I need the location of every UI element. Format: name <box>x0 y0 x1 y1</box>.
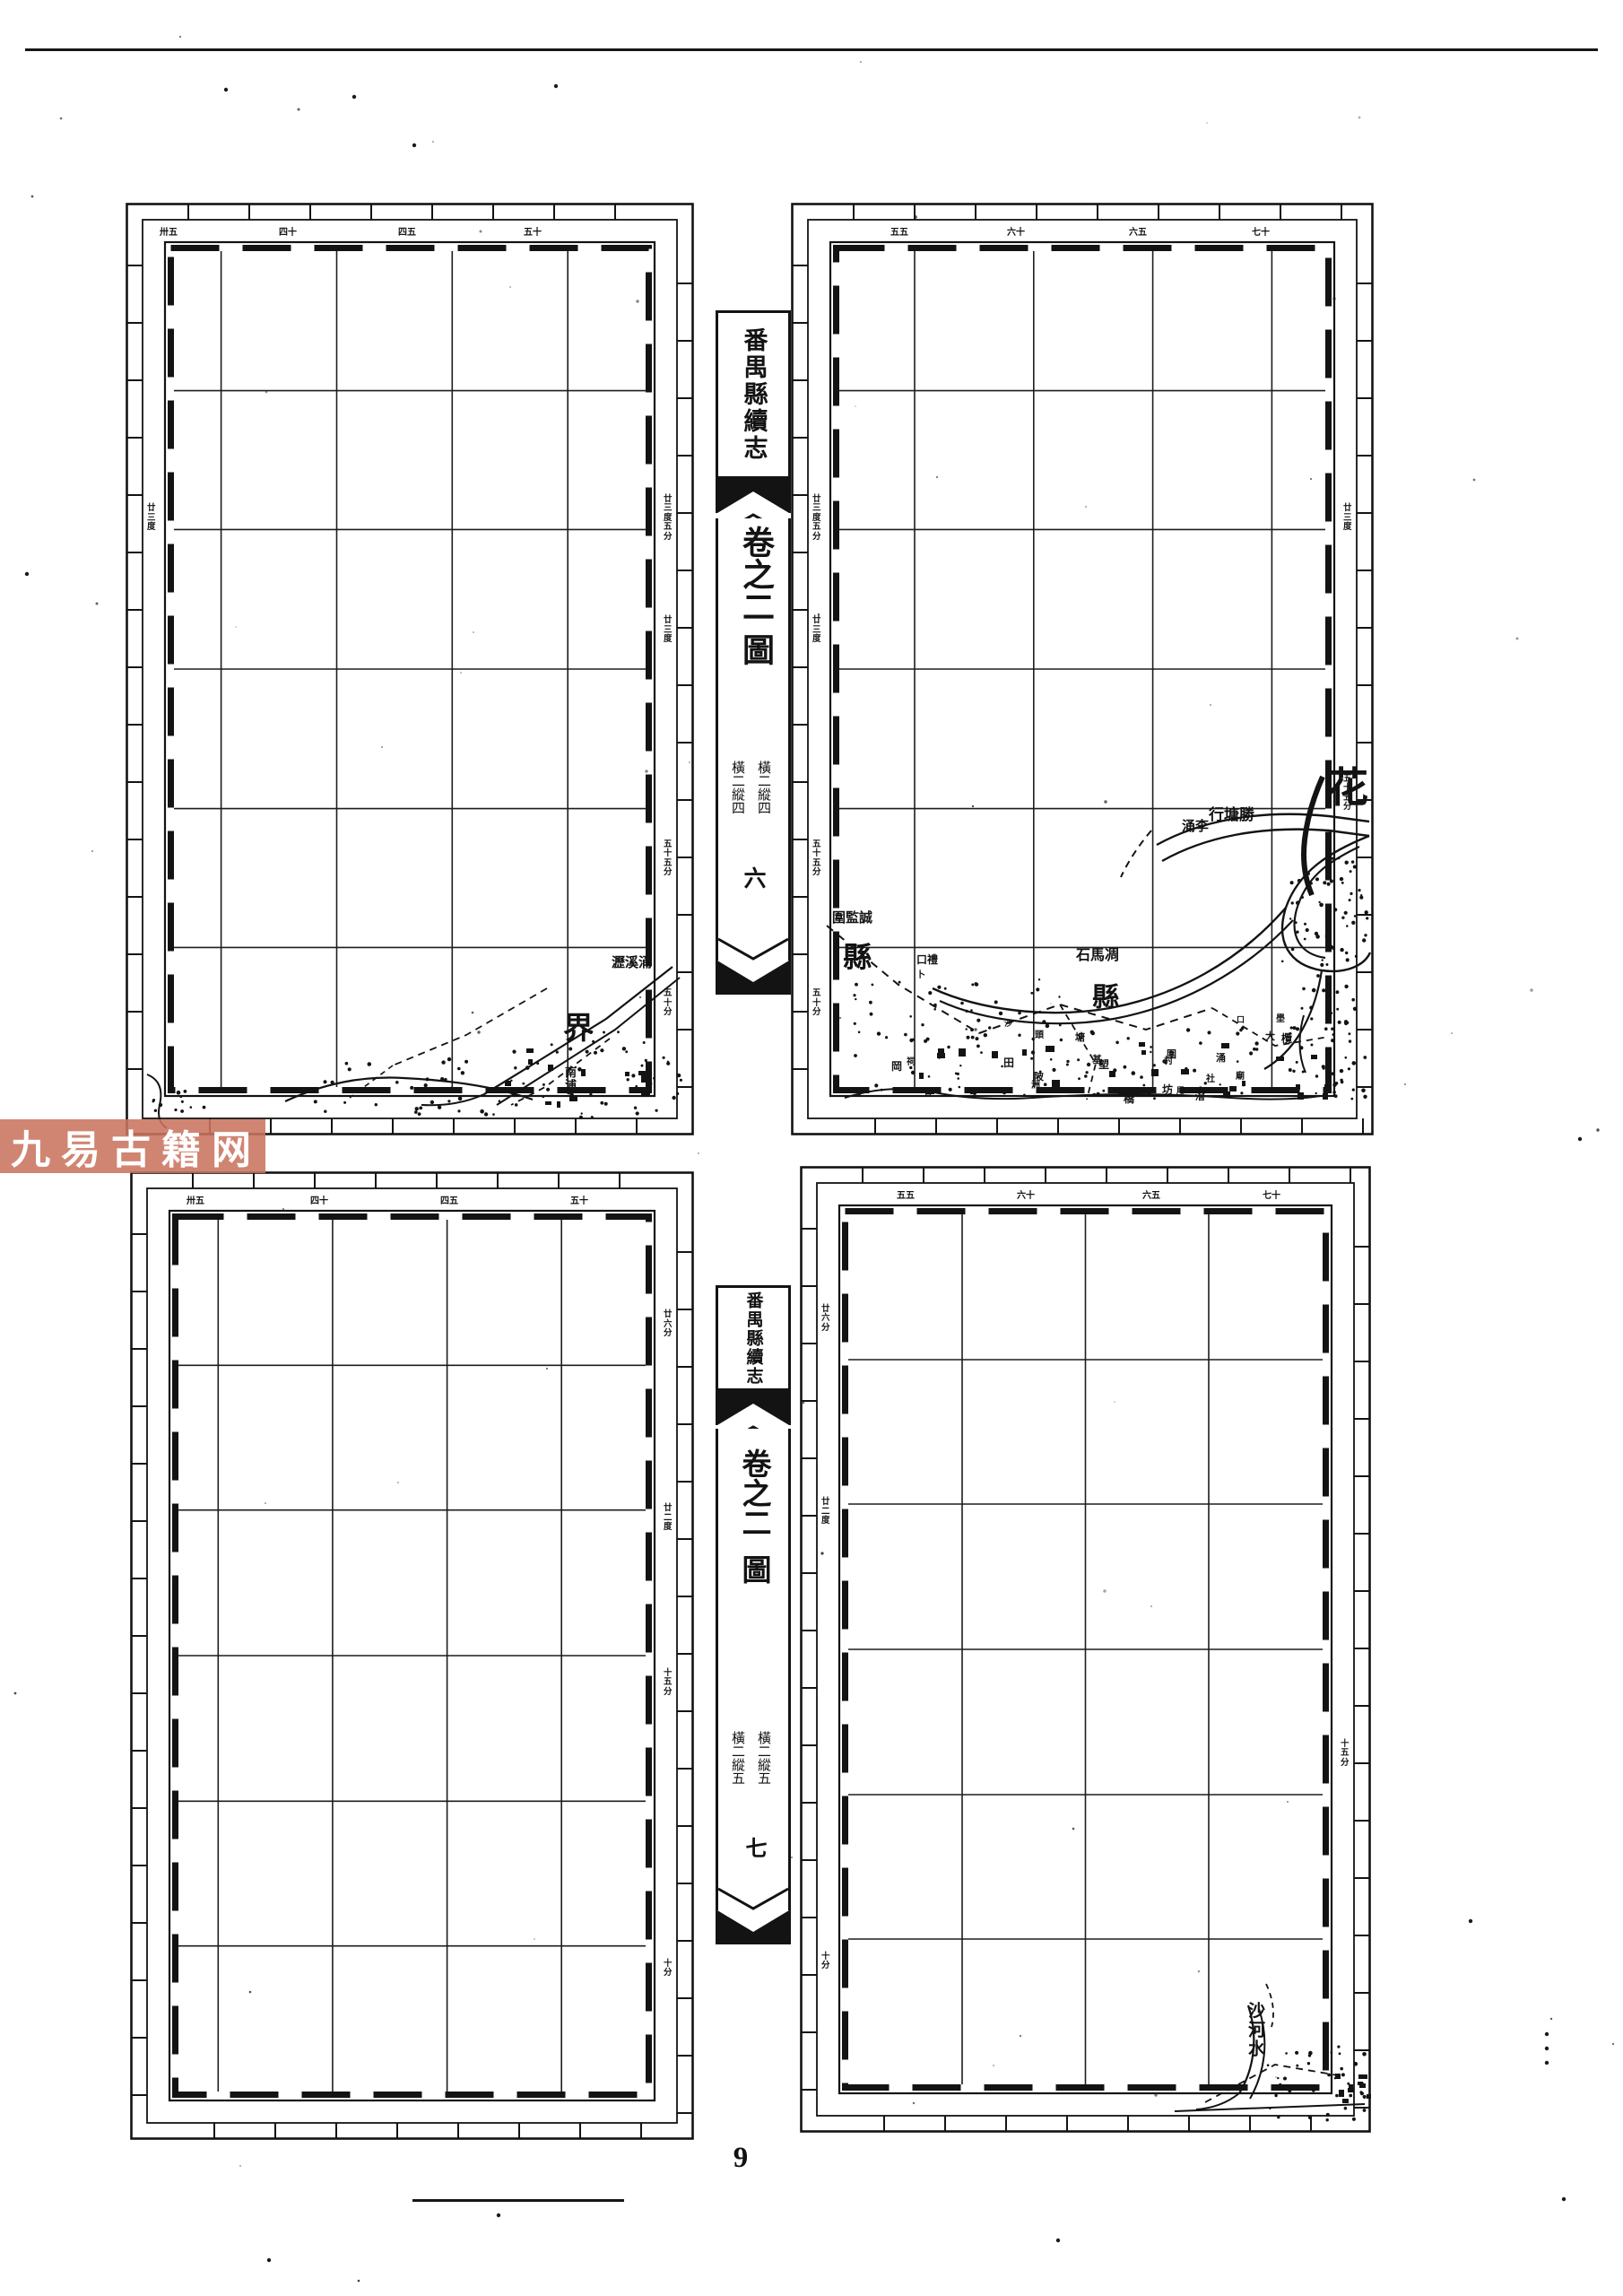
svg-text:分: 分 <box>664 1967 673 1978</box>
svg-text:分: 分 <box>812 531 821 542</box>
spine-column-top: 番禺縣續志 卷之二 圖 橫二縱四 橫二縱四 六 <box>716 310 791 995</box>
svg-text:四十: 四十 <box>310 1195 328 1206</box>
svg-text:祠: 祠 <box>907 1056 916 1067</box>
svg-text:五五: 五五 <box>890 227 908 238</box>
svg-text:口: 口 <box>1237 1015 1245 1025</box>
svg-text:界: 界 <box>563 1011 594 1047</box>
bottom-rule <box>412 2199 624 2202</box>
svg-text:口禮: 口禮 <box>916 952 938 966</box>
svg-text:度: 度 <box>821 1515 830 1526</box>
svg-text:圍: 圍 <box>1167 1048 1176 1060</box>
spine-column-bottom: 番禺縣續志 卷之二 圖 橫二縱五 橫二縱五 七 <box>716 1285 791 1944</box>
svg-text:五: 五 <box>664 522 673 532</box>
svg-text:廿: 廿 <box>1343 502 1352 513</box>
map-labels: 沙河水 <box>1248 2001 1266 2059</box>
svg-text:度: 度 <box>664 633 673 644</box>
svg-text:五: 五 <box>664 1677 673 1687</box>
volume-label: 卷之二 <box>739 526 771 622</box>
map-panel-top-left: 卅五四十四五五十廿三度五分廿三度五十五分五十分廿三度界瀝溪涌南浦 <box>126 203 694 1135</box>
svg-text:卅五: 卅五 <box>186 1196 204 1206</box>
svg-text:縣: 縣 <box>843 940 872 974</box>
svg-text:浦: 浦 <box>565 1079 577 1093</box>
svg-text:分: 分 <box>664 1686 673 1697</box>
svg-text:廿: 廿 <box>664 1309 673 1319</box>
spine-title-box: 番禺縣續志 <box>716 1285 791 1391</box>
svg-text:分: 分 <box>664 1327 673 1338</box>
svg-text:社: 社 <box>1205 1073 1215 1084</box>
svg-text:田: 田 <box>1003 1057 1014 1069</box>
svg-text:六十: 六十 <box>1007 226 1025 238</box>
svg-text:分: 分 <box>812 866 821 877</box>
map-artwork <box>1175 1984 1371 2121</box>
svg-text:五十: 五十 <box>570 1195 588 1206</box>
svg-text:卅五: 卅五 <box>159 227 178 238</box>
svg-text:分: 分 <box>664 531 673 542</box>
svg-text:十: 十 <box>812 848 821 858</box>
svg-text:頭: 頭 <box>1035 1030 1045 1040</box>
svg-text:分: 分 <box>821 1960 830 1970</box>
svg-text:橋: 橋 <box>1124 1091 1135 1105</box>
svg-text:欖: 欖 <box>1281 1031 1292 1045</box>
svg-text:尾: 尾 <box>1176 1086 1185 1096</box>
svg-text:五五: 五五 <box>897 1190 915 1201</box>
svg-text:涌: 涌 <box>1216 1051 1226 1064</box>
folio-character: 七 <box>743 1837 765 1858</box>
svg-text:花: 花 <box>1327 763 1368 812</box>
graticule-grid <box>178 1220 646 2092</box>
svg-text:三: 三 <box>812 503 821 513</box>
svg-text:四十: 四十 <box>279 226 297 238</box>
svg-text:廟: 廟 <box>1236 1070 1245 1082</box>
volume-label: 卷之二 <box>740 1448 769 1537</box>
svg-text:度: 度 <box>1343 521 1352 532</box>
svg-text:度: 度 <box>664 1521 673 1532</box>
svg-text:壆: 壆 <box>1276 1013 1285 1024</box>
svg-text:十: 十 <box>664 848 673 858</box>
svg-text:沙: 沙 <box>1248 2001 1265 2021</box>
svg-text:六: 六 <box>821 1312 830 1323</box>
svg-text:分: 分 <box>664 866 673 877</box>
book-scan-page: 卅五四十四五五十廿三度五分廿三度五十五分五十分廿三度界瀝溪涌南浦 五五六十六五七… <box>0 0 1623 2296</box>
spine-title-box: 番禺縣續志 <box>716 310 791 479</box>
svg-text:河: 河 <box>1248 2020 1265 2039</box>
svg-text:分: 分 <box>812 1006 821 1017</box>
svg-text:石: 石 <box>923 1087 932 1097</box>
svg-text:南: 南 <box>565 1065 577 1080</box>
book-title: 番禺縣續志 <box>742 327 766 462</box>
svg-text:六五: 六五 <box>1129 226 1147 238</box>
svg-text:塘: 塘 <box>1075 1031 1085 1043</box>
svg-text:圍監誠: 圍監誠 <box>832 909 872 926</box>
fishtail-ornament-inverted <box>716 1885 791 1944</box>
svg-text:分: 分 <box>1341 1757 1350 1768</box>
folio-character: 六 <box>742 866 765 889</box>
svg-text:石馬凋: 石馬凋 <box>1075 946 1119 963</box>
svg-text:瀝溪涌: 瀝溪涌 <box>612 954 652 970</box>
svg-text:五: 五 <box>812 988 821 998</box>
map-artwork <box>147 967 682 1128</box>
edge-tick-labels: 卅五四十四五五十廿六分廿二度十五分十分 <box>186 1195 673 1978</box>
map-panel-top-right: 五五六十六五七十廿三度五分廿三度五十五分五十分廿三度五十五分花行塘勝涌李圍監誠縣… <box>791 203 1374 1135</box>
svg-text:沙: 沙 <box>1004 1019 1012 1029</box>
svg-text:五十: 五十 <box>524 226 542 238</box>
svg-text:廿: 廿 <box>664 1502 673 1513</box>
svg-text:水: 水 <box>1248 2039 1266 2059</box>
edge-tick-labels: 卅五四十四五五十廿三度五分廿三度五十五分五十分廿三度 <box>147 226 673 1017</box>
sheet-index-right: 橫二縱四 <box>757 761 770 814</box>
svg-text:廿: 廿 <box>812 614 821 625</box>
svg-text:大: 大 <box>1265 1030 1275 1042</box>
svg-text:七十: 七十 <box>1252 226 1270 238</box>
graticule-grid <box>174 251 646 1087</box>
section-label: 圖 <box>739 633 771 665</box>
svg-text:四五: 四五 <box>398 227 416 238</box>
top-rule <box>25 48 1598 51</box>
map-artwork <box>827 777 1370 1100</box>
sheet-index-left: 橫二縱四 <box>731 761 744 814</box>
fishtail-ornament-inverted <box>716 935 791 995</box>
page-number: 9 <box>714 2142 768 2175</box>
svg-text:廿: 廿 <box>821 1496 830 1507</box>
svg-text:度: 度 <box>812 633 821 644</box>
sheet-index-left: 橫二縱五 <box>731 1731 744 1785</box>
svg-text:七十: 七十 <box>1263 1189 1280 1201</box>
svg-text:涌李: 涌李 <box>1182 818 1210 834</box>
book-title: 番禺縣續志 <box>745 1291 762 1386</box>
svg-text:廿: 廿 <box>664 614 673 625</box>
svg-text:三: 三 <box>664 503 673 513</box>
svg-text:六十: 六十 <box>1017 1189 1035 1201</box>
svg-text:行塘勝: 行塘勝 <box>1208 805 1255 824</box>
section-label: 圖 <box>740 1554 769 1584</box>
graticule-grid <box>848 1214 1323 2084</box>
svg-text:四五: 四五 <box>440 1196 458 1206</box>
watermark-text: 九易古籍网 <box>0 1118 262 1175</box>
svg-text:五: 五 <box>812 522 821 532</box>
svg-text:卜: 卜 <box>916 970 925 980</box>
svg-text:五: 五 <box>1341 1748 1350 1758</box>
svg-text:分: 分 <box>821 1322 830 1333</box>
svg-text:廿: 廿 <box>147 502 156 513</box>
map-panel-bottom-left: 卅五四十四五五十廿六分廿二度十五分十分 <box>130 1171 694 2140</box>
svg-text:坊: 坊 <box>1162 1083 1173 1096</box>
svg-text:六五: 六五 <box>1142 1189 1160 1201</box>
svg-text:分: 分 <box>664 1006 673 1017</box>
svg-text:滘: 滘 <box>1195 1090 1205 1102</box>
watermark-banner: 九易古籍网 <box>0 1119 265 1173</box>
sheet-index-right: 橫二縱五 <box>757 1731 770 1785</box>
svg-text:岡: 岡 <box>891 1060 902 1073</box>
svg-text:度: 度 <box>147 521 156 532</box>
svg-text:縣: 縣 <box>1092 982 1119 1013</box>
map-panel-bottom-right: 五五六十六五七十廿六分廿二度十分十五分沙河水 <box>800 1166 1371 2133</box>
svg-text:陂: 陂 <box>1034 1070 1044 1083</box>
svg-text:基: 基 <box>1091 1053 1103 1065</box>
